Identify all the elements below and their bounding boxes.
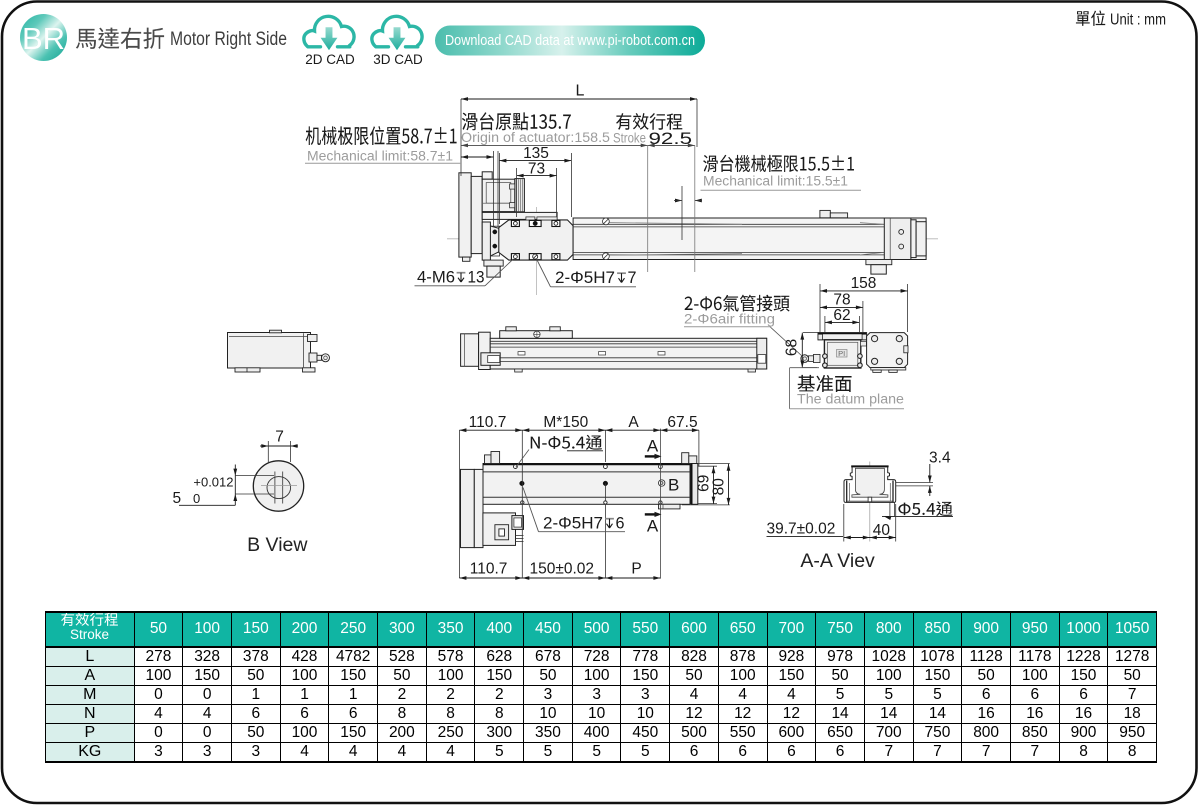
svg-text:M*150: M*150: [543, 414, 588, 431]
svg-text:2-Φ5H7: 2-Φ5H7: [555, 269, 615, 287]
svg-text:73: 73: [528, 161, 545, 178]
svg-text:Origin of actuator:158.5: Origin of actuator:158.5: [461, 130, 610, 145]
svg-text:150±0.02: 150±0.02: [530, 561, 595, 578]
svg-text:7: 7: [628, 269, 637, 287]
svg-text:B View: B View: [247, 534, 308, 556]
svg-text:2-Φ5H7: 2-Φ5H7: [543, 515, 603, 533]
svg-text:BR: BR: [22, 21, 65, 56]
svg-text:5: 5: [173, 490, 182, 507]
svg-text:Motor Right Side: Motor Right Side: [170, 28, 287, 50]
svg-text:Unit : mm: Unit : mm: [1110, 12, 1166, 29]
svg-text:6: 6: [616, 515, 625, 533]
svg-text:39.7±0.02: 39.7±0.02: [767, 521, 836, 538]
svg-text:135: 135: [523, 145, 549, 162]
svg-text:PI: PI: [838, 349, 845, 358]
svg-text:Stroke: Stroke: [70, 627, 109, 641]
svg-text:158: 158: [851, 275, 877, 292]
svg-text:7: 7: [275, 429, 284, 446]
svg-text:P: P: [631, 561, 641, 578]
svg-text:A: A: [628, 414, 639, 431]
svg-text:62: 62: [833, 307, 850, 324]
svg-text:Download CAD data at www.pi-ro: Download CAD data at www.pi-robot.com.cn: [445, 33, 695, 49]
svg-text:110.7: 110.7: [469, 414, 507, 431]
svg-text:A-A Viev: A-A Viev: [800, 550, 875, 572]
svg-text:3D CAD: 3D CAD: [373, 52, 423, 67]
svg-text:78: 78: [833, 292, 850, 309]
svg-text:4-M6: 4-M6: [417, 269, 455, 287]
svg-text:0: 0: [193, 491, 200, 506]
svg-text:2D CAD: 2D CAD: [305, 52, 355, 67]
svg-text:80: 80: [711, 478, 728, 496]
svg-text:A: A: [647, 437, 659, 456]
svg-text:13: 13: [468, 269, 485, 287]
svg-text:The datum plane: The datum plane: [797, 392, 904, 407]
svg-text:3.4: 3.4: [929, 450, 951, 467]
svg-text:Stroke: Stroke: [613, 131, 646, 146]
svg-text:68: 68: [784, 339, 801, 356]
svg-text:Mechanical limit:58.7±1: Mechanical limit:58.7±1: [307, 149, 453, 164]
svg-text:67.5: 67.5: [667, 414, 697, 431]
svg-text:+0.012: +0.012: [193, 475, 233, 490]
svg-text:110.7: 110.7: [470, 561, 508, 578]
svg-text:2-Φ6air fitting: 2-Φ6air fitting: [684, 312, 775, 327]
svg-text:L: L: [576, 83, 585, 100]
svg-text:A: A: [647, 517, 659, 536]
svg-text:Mechanical limit:15.5±1: Mechanical limit:15.5±1: [703, 174, 848, 189]
svg-text:B: B: [668, 476, 679, 495]
